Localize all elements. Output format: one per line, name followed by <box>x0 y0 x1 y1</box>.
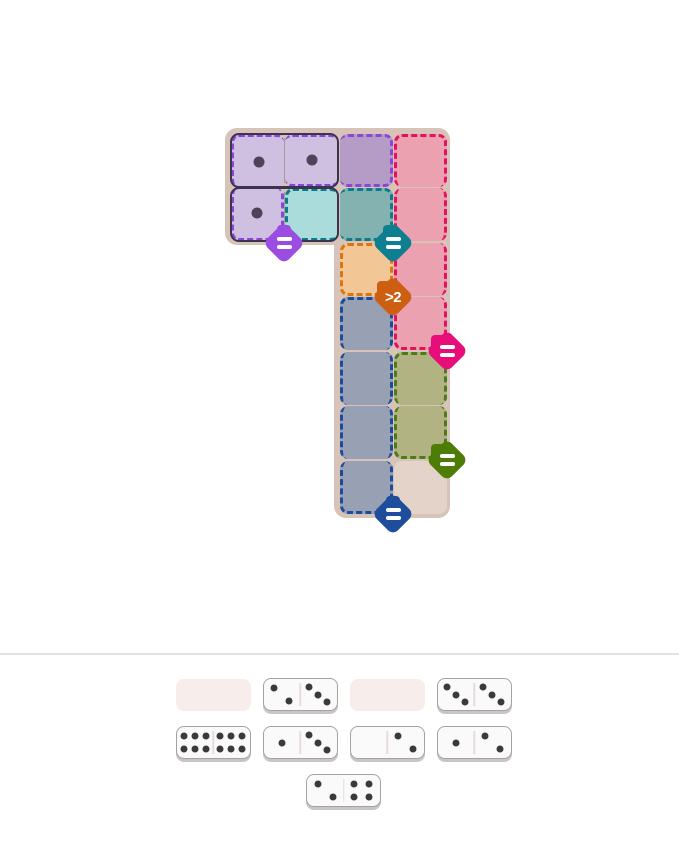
pip <box>306 732 313 739</box>
pip <box>329 793 336 800</box>
badge-label <box>432 336 462 366</box>
pip <box>366 781 373 788</box>
board-cell-r1c4[interactable] <box>394 134 447 187</box>
pip <box>239 733 246 740</box>
pip <box>228 745 235 752</box>
domino-tray <box>0 653 679 810</box>
equals-icon <box>277 237 292 250</box>
pip <box>351 793 358 800</box>
board-cell-r1c3[interactable] <box>340 134 393 187</box>
domino-half-left <box>438 727 475 758</box>
pip <box>481 733 488 740</box>
pip <box>324 698 331 705</box>
pip <box>191 745 198 752</box>
domino-half-divider <box>343 779 345 802</box>
pip <box>239 745 246 752</box>
tray-domino-1-2[interactable] <box>437 726 512 759</box>
pip <box>496 745 503 752</box>
domino-half-right <box>474 679 511 710</box>
pip <box>314 781 321 788</box>
equals-bar <box>386 245 401 250</box>
magenta-equal-badge <box>432 336 462 366</box>
tray-row <box>4 774 679 810</box>
pip <box>315 691 322 698</box>
domino-half-right <box>213 727 250 758</box>
pip <box>217 733 224 740</box>
placed-domino-1-1[interactable] <box>230 133 340 188</box>
domino-half-divider <box>473 731 475 754</box>
olive-equal-badge <box>432 445 462 475</box>
board-cell-r5c3[interactable] <box>340 352 393 405</box>
pip <box>443 684 450 691</box>
tray-row <box>4 726 679 762</box>
constraint-text: >2 <box>385 289 401 306</box>
equals-bar <box>440 353 455 358</box>
domino-half-right <box>387 727 424 758</box>
domino-half-right <box>300 727 337 758</box>
badge-label <box>378 228 408 258</box>
tray-domino-3-3[interactable] <box>437 678 512 711</box>
pip <box>394 733 401 740</box>
pip <box>278 739 285 746</box>
tray-domino-1-3[interactable] <box>263 726 338 759</box>
navy-equal-badge <box>378 499 408 529</box>
teal-equal-badge <box>378 228 408 258</box>
pip <box>180 745 187 752</box>
pip <box>228 733 235 740</box>
domino-half-right <box>474 727 511 758</box>
pip <box>452 739 459 746</box>
puzzle-board <box>225 128 450 518</box>
pips-puzzle-game: >2 <box>0 0 679 858</box>
pip <box>480 684 487 691</box>
pip <box>271 685 278 692</box>
domino-half-divider <box>473 683 475 706</box>
equals-bar <box>277 245 292 250</box>
orange-greater-than-2-badge: >2 <box>378 282 408 312</box>
pip <box>366 793 373 800</box>
tray-row <box>4 678 679 714</box>
badge-label <box>269 228 299 258</box>
equals-bar <box>386 237 401 242</box>
equals-bar <box>277 237 292 242</box>
tray-domino-2-4[interactable] <box>306 774 381 807</box>
badge-label: >2 <box>378 282 408 312</box>
equals-bar <box>440 462 455 467</box>
purple-equal-badge <box>269 228 299 258</box>
equals-bar <box>386 508 401 513</box>
equals-bar <box>386 516 401 521</box>
domino-half-left <box>307 775 344 806</box>
badge-label <box>432 445 462 475</box>
equals-icon <box>386 237 401 250</box>
domino-half-divider <box>299 683 301 706</box>
pip <box>306 684 313 691</box>
pip <box>409 745 416 752</box>
badge-label <box>378 499 408 529</box>
tray-domino-0-2[interactable] <box>350 726 425 759</box>
domino-half-left <box>264 679 301 710</box>
tray-empty-slot <box>350 679 425 711</box>
tray-domino-6-6[interactable] <box>176 726 251 759</box>
tray-empty-slot <box>176 679 251 711</box>
pip <box>498 698 505 705</box>
pip <box>461 698 468 705</box>
domino-half-right <box>344 775 381 806</box>
domino-half-divider <box>212 731 214 754</box>
pip <box>351 781 358 788</box>
pip <box>202 745 209 752</box>
equals-icon <box>440 454 455 467</box>
domino-half-right <box>300 679 337 710</box>
equals-icon <box>386 508 401 521</box>
equals-bar <box>440 454 455 459</box>
pip <box>489 691 496 698</box>
board-cell-r6c3[interactable] <box>340 406 393 459</box>
pip <box>324 746 331 753</box>
pip <box>217 745 224 752</box>
domino-half-left <box>438 679 475 710</box>
domino-half-divider <box>284 138 285 183</box>
pip <box>202 733 209 740</box>
tray-domino-2-3[interactable] <box>263 678 338 711</box>
equals-icon <box>440 345 455 358</box>
pip <box>286 697 293 704</box>
domino-half-divider <box>299 731 301 754</box>
domino-half-left <box>177 727 214 758</box>
pip <box>315 739 322 746</box>
pip <box>452 691 459 698</box>
domino-half-left <box>264 727 301 758</box>
domino-half-divider <box>386 731 388 754</box>
pip <box>191 733 198 740</box>
domino-half-left <box>351 727 388 758</box>
pip <box>180 733 187 740</box>
equals-bar <box>440 345 455 350</box>
